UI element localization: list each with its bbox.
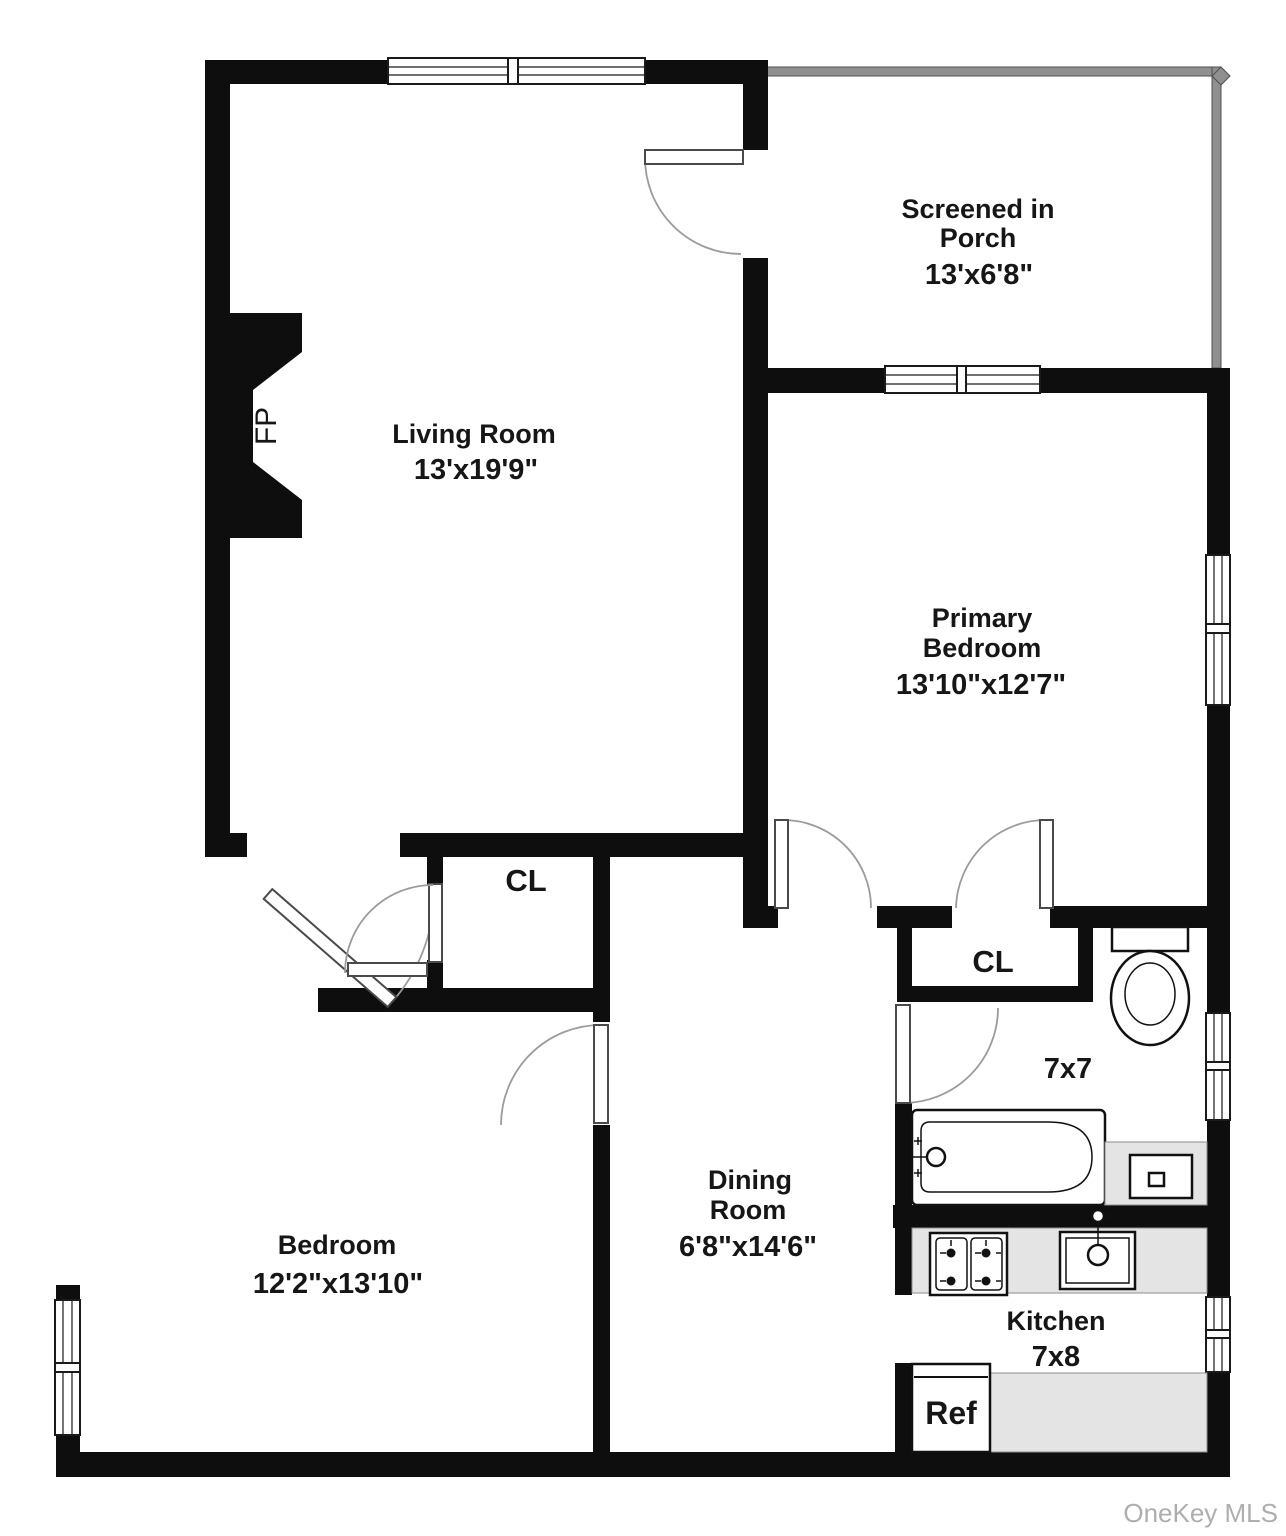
room-label-dining-room: Dining Room 6'8"x14'6"	[679, 1165, 817, 1263]
stove-fixture	[930, 1233, 1007, 1295]
window-primary-bedroom-top	[885, 366, 1040, 393]
window-bathroom-right	[1206, 1013, 1230, 1120]
primary-bedroom-name-line1: Primary	[932, 603, 1033, 633]
window-bedroom-left	[55, 1300, 80, 1435]
fireplace-label: FP	[250, 407, 283, 445]
room-label-primary-bedroom: Primary Bedroom 13'10"x12'7"	[896, 603, 1066, 701]
bathtub-fixture	[912, 1110, 1105, 1205]
watermark: OneKey MLS	[1123, 1498, 1278, 1528]
living-room-name: Living Room	[392, 419, 556, 449]
floor-plan-page: Ref FP Living Room 13'x19'9" Screened in…	[0, 0, 1286, 1536]
living-room-dims: 13'x19'9"	[414, 454, 538, 486]
door-living-room-to-porch	[645, 150, 743, 254]
primary-bedroom-name-line2: Bedroom	[923, 633, 1042, 663]
room-label-bedroom: Bedroom 12'2"x13'10"	[253, 1230, 423, 1300]
door-hall-closet	[345, 884, 442, 976]
dining-room-dims: 6'8"x14'6"	[679, 1231, 817, 1263]
refrigerator-label: Ref	[925, 1395, 977, 1431]
door-bedroom	[501, 1025, 608, 1125]
door-primary-bedroom	[775, 820, 871, 908]
bathroom-dims: 7x7	[1044, 1053, 1092, 1085]
porch-dims: 13'x6'8"	[925, 259, 1033, 291]
kitchen-counter-bottom	[988, 1373, 1207, 1452]
window-kitchen-right	[1206, 1297, 1230, 1372]
room-label-living-room: Living Room 13'x19'9"	[392, 419, 556, 486]
refrigerator-fixture: Ref	[912, 1364, 990, 1452]
primary-bedroom-closet-label: CL	[972, 944, 1013, 979]
door-bathroom	[896, 1005, 998, 1103]
toilet-fixture	[1111, 927, 1189, 1045]
window-primary-bedroom-right	[1206, 555, 1230, 705]
dining-room-name-line2: Room	[710, 1195, 787, 1225]
kitchen-name: Kitchen	[1006, 1306, 1105, 1336]
dining-room-name-line1: Dining	[708, 1165, 792, 1195]
kitchen-dims: 7x8	[1032, 1341, 1080, 1373]
hall-closet-label: CL	[505, 863, 546, 898]
primary-bedroom-dims: 13'10"x12'7"	[896, 669, 1066, 701]
window-living-room-top	[388, 58, 645, 84]
room-label-screened-porch: Screened in Porch 13'x6'8"	[901, 194, 1054, 291]
bedroom-name: Bedroom	[278, 1230, 397, 1260]
floor-plan-drawing: Ref FP Living Room 13'x19'9" Screened in…	[0, 0, 1286, 1536]
room-label-kitchen: Kitchen 7x8	[1006, 1306, 1105, 1373]
porch-name-line2: Porch	[940, 223, 1017, 253]
bathroom-vanity-sink-fixture	[1105, 1142, 1207, 1205]
porch-name-line1: Screened in	[901, 194, 1054, 224]
bedroom-dims: 12'2"x13'10"	[253, 1268, 423, 1300]
door-primary-bedroom-closet	[956, 820, 1053, 908]
